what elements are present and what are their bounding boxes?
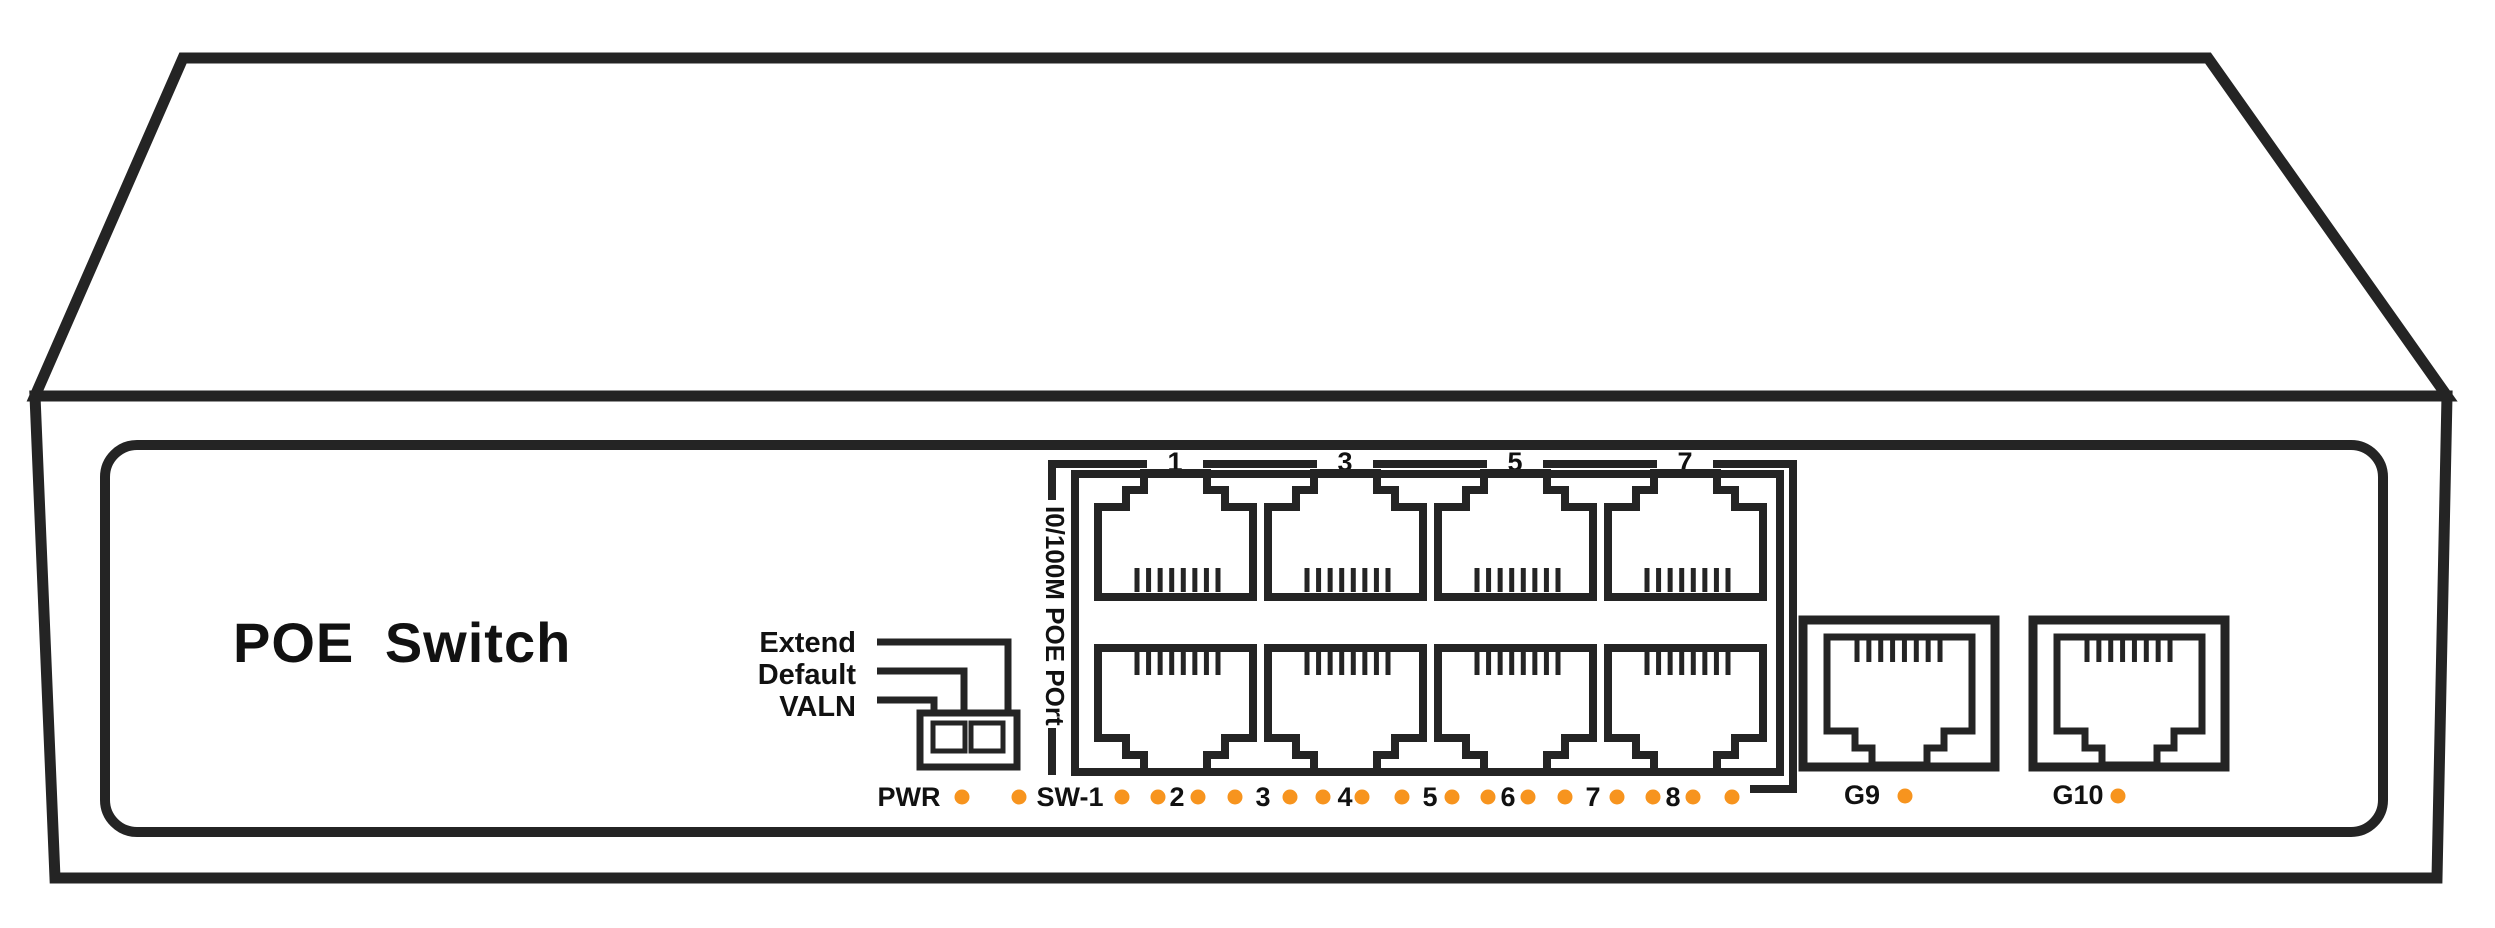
dip-label-extend: Extend bbox=[759, 627, 856, 659]
led-label-6: 6 bbox=[1500, 782, 1515, 812]
chassis-top-face bbox=[35, 58, 2447, 396]
led-dot bbox=[1151, 790, 1166, 805]
led-dot bbox=[1558, 790, 1573, 805]
port-group-label: I0/100M POE POrt bbox=[1040, 506, 1070, 726]
led-label-sw-1: SW-1 bbox=[1037, 782, 1104, 812]
switch-drawing: POE Switch Extend Default VALN 1 3 5 7 I… bbox=[0, 0, 2495, 928]
uplink-port-g9-bezel bbox=[1803, 620, 1995, 767]
uplink-port-g10-bezel bbox=[2033, 620, 2225, 767]
led-dot bbox=[1115, 790, 1130, 805]
led-dot bbox=[955, 790, 970, 805]
dip-label-valn: VALN bbox=[779, 691, 856, 723]
led-dot bbox=[1481, 790, 1496, 805]
led-dot bbox=[1012, 790, 1027, 805]
dip-switch-toggle-1 bbox=[933, 723, 965, 751]
led-label-8: 8 bbox=[1665, 782, 1680, 812]
led-label-pwr: PWR bbox=[878, 782, 941, 812]
led-dot bbox=[1521, 790, 1536, 805]
led-dot bbox=[1395, 790, 1410, 805]
led-dot bbox=[1191, 790, 1206, 805]
uplink-label-g9: G9 bbox=[1844, 780, 1880, 810]
led-label-4: 4 bbox=[1337, 782, 1352, 812]
led-label-2: 2 bbox=[1169, 782, 1184, 812]
dip-switch-toggle-2 bbox=[971, 723, 1003, 751]
led-dot bbox=[1725, 790, 1740, 805]
led-dot bbox=[1283, 790, 1298, 805]
led-dot bbox=[1646, 790, 1661, 805]
led-dot bbox=[1686, 790, 1701, 805]
led-dot bbox=[1355, 790, 1370, 805]
led-dot bbox=[1316, 790, 1331, 805]
led-label-5: 5 bbox=[1422, 782, 1437, 812]
led-label-3: 3 bbox=[1255, 782, 1270, 812]
brand-label: POE Switch bbox=[233, 611, 571, 674]
led-dot bbox=[1445, 790, 1460, 805]
led-label-7: 7 bbox=[1585, 782, 1600, 812]
dip-label-default: Default bbox=[758, 659, 857, 691]
led-dot bbox=[1610, 790, 1625, 805]
led-dot bbox=[1228, 790, 1243, 805]
uplink-led-g10 bbox=[2111, 789, 2126, 804]
uplink-label-g10: G10 bbox=[2052, 780, 2103, 810]
uplink-led-g9 bbox=[1898, 789, 1913, 804]
poe-switch-diagram: POE Switch Extend Default VALN 1 3 5 7 I… bbox=[0, 0, 2495, 928]
